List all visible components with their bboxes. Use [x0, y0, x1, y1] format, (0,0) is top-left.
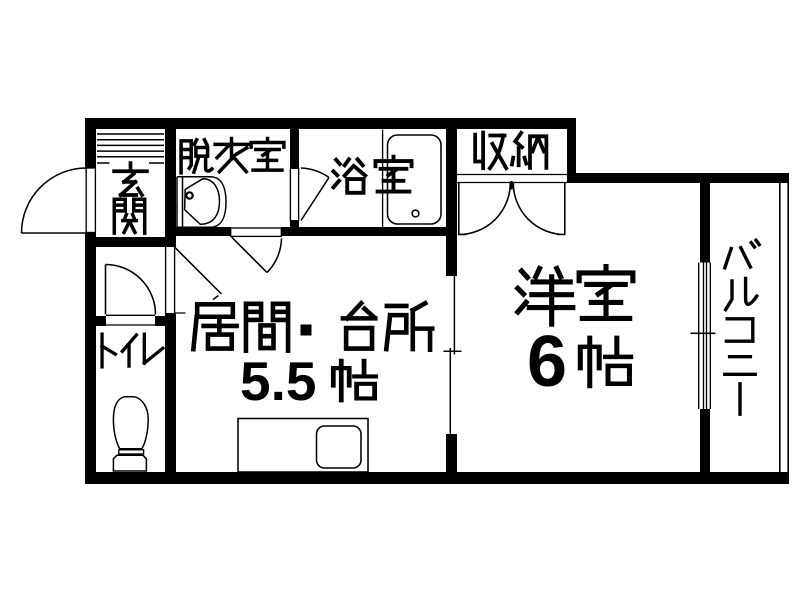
svg-text:5.5: 5.5: [240, 350, 316, 412]
svg-text:6: 6: [527, 322, 567, 402]
